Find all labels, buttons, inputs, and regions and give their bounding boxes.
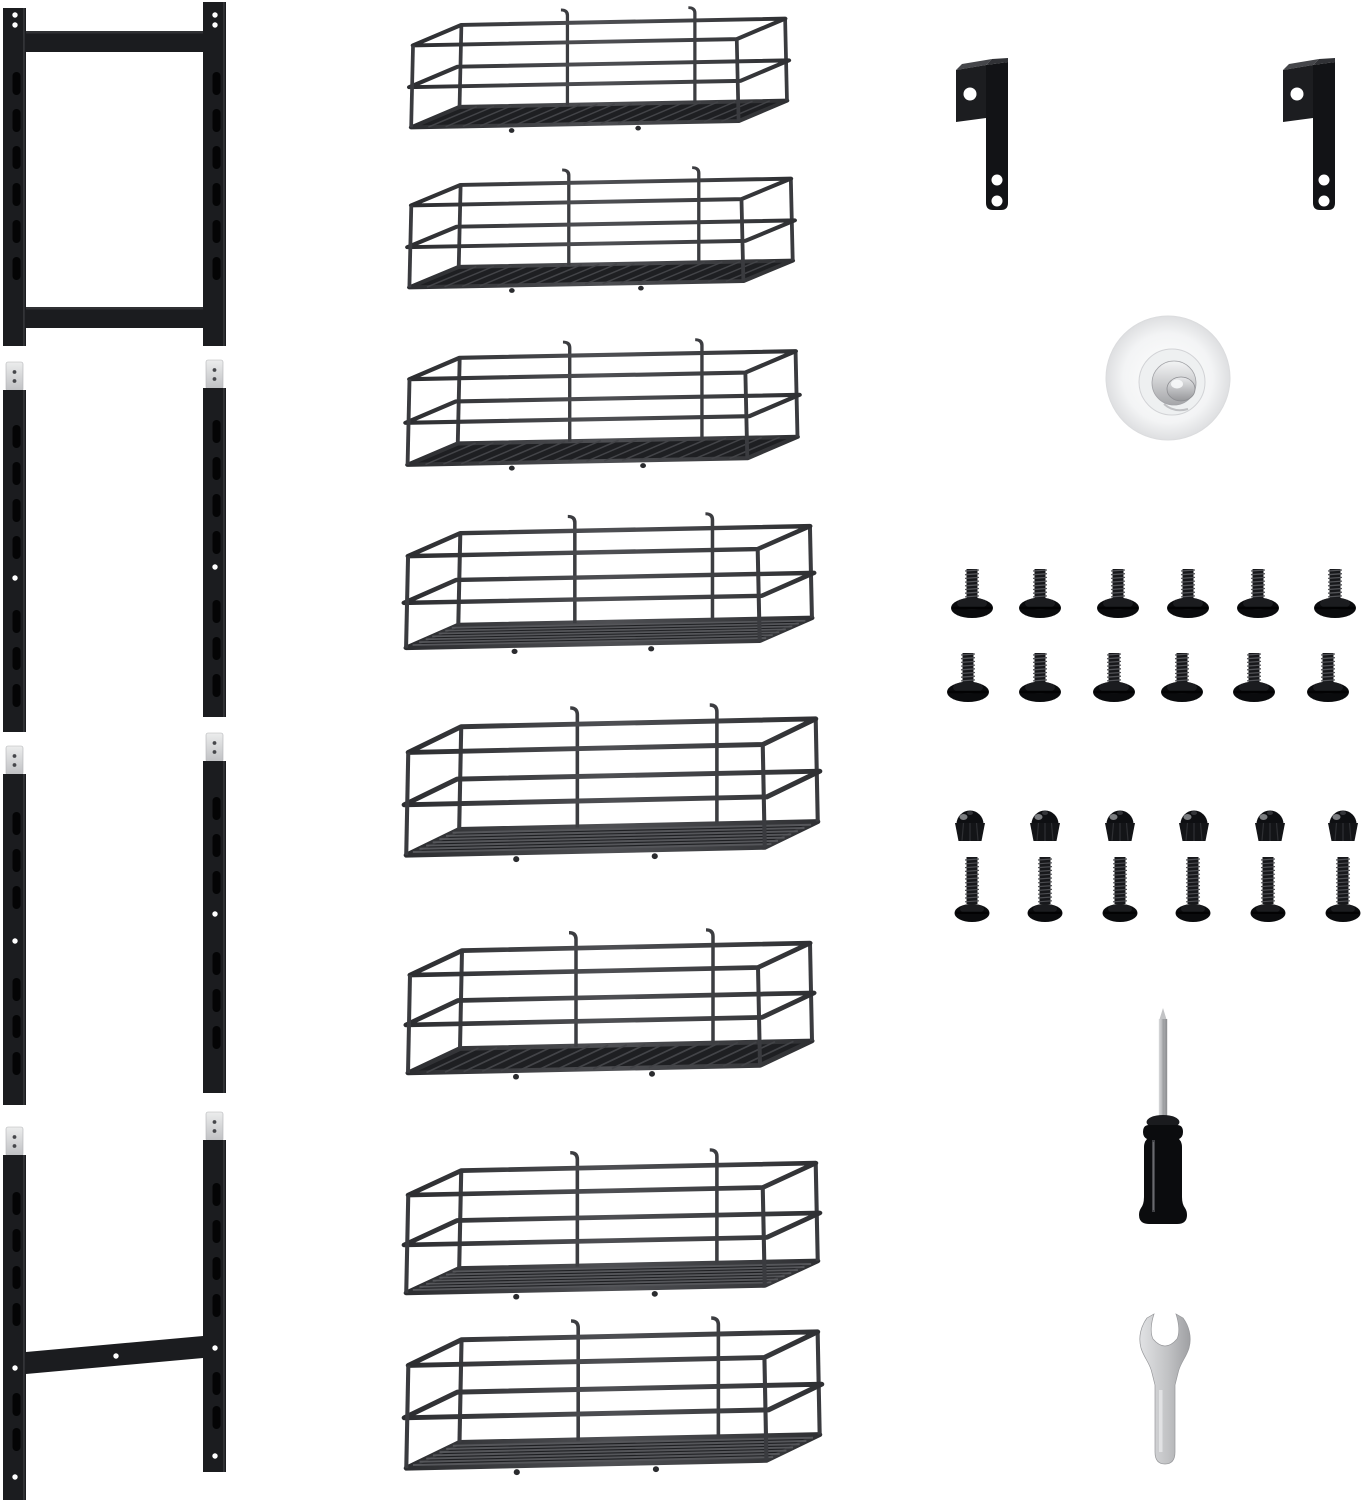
rail-slot bbox=[13, 1393, 21, 1416]
wrench-body bbox=[1140, 1314, 1190, 1464]
rail-hole bbox=[212, 564, 217, 569]
short-screw-2 bbox=[1019, 569, 1061, 618]
rail-slot bbox=[213, 797, 221, 820]
wire-basket-4 bbox=[404, 514, 814, 654]
rail-slot bbox=[13, 499, 21, 522]
rail-connector bbox=[206, 1112, 223, 1141]
cap-nut-6 bbox=[1328, 811, 1358, 842]
rail-slot bbox=[213, 1372, 221, 1395]
extension-rails bbox=[3, 360, 226, 1105]
rail-slot bbox=[13, 1428, 21, 1451]
rail-connector bbox=[206, 733, 223, 762]
rail-slot bbox=[13, 978, 21, 1001]
rail-slot bbox=[13, 536, 21, 559]
slotted-rail bbox=[3, 8, 26, 346]
rail-slot bbox=[13, 146, 21, 169]
rail-slot bbox=[213, 494, 221, 517]
short-screw-6 bbox=[1314, 569, 1356, 618]
rail-slot bbox=[213, 952, 221, 975]
rail-hole bbox=[212, 1345, 217, 1350]
mounting-brackets bbox=[956, 58, 1335, 210]
rail-slot bbox=[13, 72, 21, 95]
rail-slot bbox=[13, 849, 21, 872]
rail-hole bbox=[12, 1474, 17, 1479]
rail-connector bbox=[206, 360, 223, 389]
short-screw-4 bbox=[1167, 569, 1209, 618]
rail-hole bbox=[12, 12, 17, 17]
short-screw-9 bbox=[1093, 653, 1135, 702]
wire-basket-3 bbox=[406, 340, 800, 471]
rail-hole bbox=[12, 1365, 17, 1370]
cap-nut-3 bbox=[1105, 811, 1135, 842]
cap-nut-4 bbox=[1179, 811, 1209, 842]
rail-slot bbox=[13, 886, 21, 909]
cap-nut-5 bbox=[1255, 811, 1285, 842]
short-screw-8 bbox=[1019, 653, 1061, 702]
rail-slot bbox=[13, 1015, 21, 1038]
screwdriver-handle bbox=[1139, 1125, 1187, 1224]
rail-slot bbox=[213, 600, 221, 623]
rail-connector bbox=[6, 1127, 23, 1156]
long-bolt-2 bbox=[1028, 857, 1063, 922]
short-screw-1 bbox=[951, 569, 993, 618]
long-bolt-3 bbox=[1103, 857, 1138, 922]
wire-basket-5 bbox=[404, 705, 820, 862]
rail-slot bbox=[13, 1052, 21, 1075]
rail-slot bbox=[213, 420, 221, 443]
short-screw-3 bbox=[1097, 569, 1139, 618]
rail-slot bbox=[213, 183, 221, 206]
short-screws bbox=[947, 569, 1356, 702]
rail-slot bbox=[213, 989, 221, 1012]
screwdriver-tool bbox=[1139, 1008, 1187, 1224]
wire-basket-2 bbox=[407, 168, 794, 293]
wire-basket-1 bbox=[409, 8, 789, 133]
short-screw-10 bbox=[1161, 653, 1203, 702]
rail-slot bbox=[213, 637, 221, 660]
rail-hole bbox=[113, 1353, 118, 1358]
rail-connector bbox=[6, 746, 23, 775]
mounting-bracket-2 bbox=[1283, 58, 1335, 210]
rail-slot bbox=[13, 610, 21, 633]
rail-slot bbox=[13, 1229, 21, 1252]
slotted-rail bbox=[203, 2, 226, 346]
rail-hole bbox=[12, 575, 17, 580]
short-screw-11 bbox=[1233, 653, 1275, 702]
long-bolts bbox=[955, 857, 1361, 922]
short-screw-12 bbox=[1307, 653, 1349, 702]
wire-basket-8 bbox=[404, 1318, 821, 1475]
wrench-tool bbox=[1140, 1314, 1190, 1464]
rail-slot bbox=[13, 1192, 21, 1215]
bottom-mount-frame bbox=[3, 1112, 226, 1500]
rail-hole bbox=[212, 12, 217, 17]
wire-basket-7 bbox=[404, 1150, 820, 1300]
short-screw-5 bbox=[1237, 569, 1279, 618]
short-screw-7 bbox=[947, 653, 989, 702]
parts-scene bbox=[0, 0, 1364, 1500]
rail-slot bbox=[213, 457, 221, 480]
rail-slot bbox=[13, 647, 21, 670]
rail-slot bbox=[213, 674, 221, 697]
rail-slot bbox=[13, 462, 21, 485]
cap-nuts bbox=[955, 811, 1358, 842]
wire-basket-6 bbox=[406, 930, 814, 1080]
rail-hole bbox=[212, 1453, 217, 1458]
long-bolt-5 bbox=[1251, 857, 1286, 922]
mounting-bracket-1 bbox=[956, 58, 1008, 210]
rail-slot bbox=[13, 425, 21, 448]
rail-slot bbox=[213, 531, 221, 554]
rail-hole bbox=[12, 938, 17, 943]
top-mount-frame bbox=[3, 2, 226, 346]
rail-slot bbox=[13, 257, 21, 280]
rail-slot bbox=[213, 146, 221, 169]
rail-slot bbox=[213, 871, 221, 894]
rail-slot bbox=[213, 1183, 221, 1206]
frame-crossbar bbox=[13, 307, 217, 328]
rail-slot bbox=[213, 257, 221, 280]
long-bolt-6 bbox=[1326, 857, 1361, 922]
rail-connector bbox=[6, 362, 23, 391]
rail-slot bbox=[13, 812, 21, 835]
frame-crossbar bbox=[13, 31, 217, 52]
suction-anchor bbox=[1106, 316, 1230, 440]
product-photo bbox=[0, 0, 1364, 1500]
rail-slot bbox=[13, 220, 21, 243]
long-bolt-1 bbox=[955, 857, 990, 922]
rail-slot bbox=[213, 1026, 221, 1049]
rail-slot bbox=[213, 1220, 221, 1243]
rail-slot bbox=[213, 220, 221, 243]
rail-slot bbox=[13, 684, 21, 707]
rail-hole bbox=[12, 22, 17, 27]
rail-slot bbox=[213, 72, 221, 95]
long-bolt-4 bbox=[1176, 857, 1211, 922]
rail-slot bbox=[13, 109, 21, 132]
rail-slot bbox=[13, 1303, 21, 1326]
rail-slot bbox=[213, 834, 221, 857]
rail-slot bbox=[213, 1294, 221, 1317]
anchor-knob bbox=[1167, 377, 1195, 401]
rail-slot bbox=[213, 1406, 221, 1429]
rail-slot bbox=[213, 1257, 221, 1280]
wire-baskets bbox=[404, 8, 822, 1476]
rail-slot bbox=[13, 1266, 21, 1289]
rail-slot bbox=[13, 183, 21, 206]
rail-slot bbox=[213, 109, 221, 132]
rail-hole bbox=[212, 911, 217, 916]
cap-nut-1 bbox=[955, 811, 985, 842]
cap-nut-2 bbox=[1030, 811, 1060, 842]
rail-hole bbox=[212, 22, 217, 27]
